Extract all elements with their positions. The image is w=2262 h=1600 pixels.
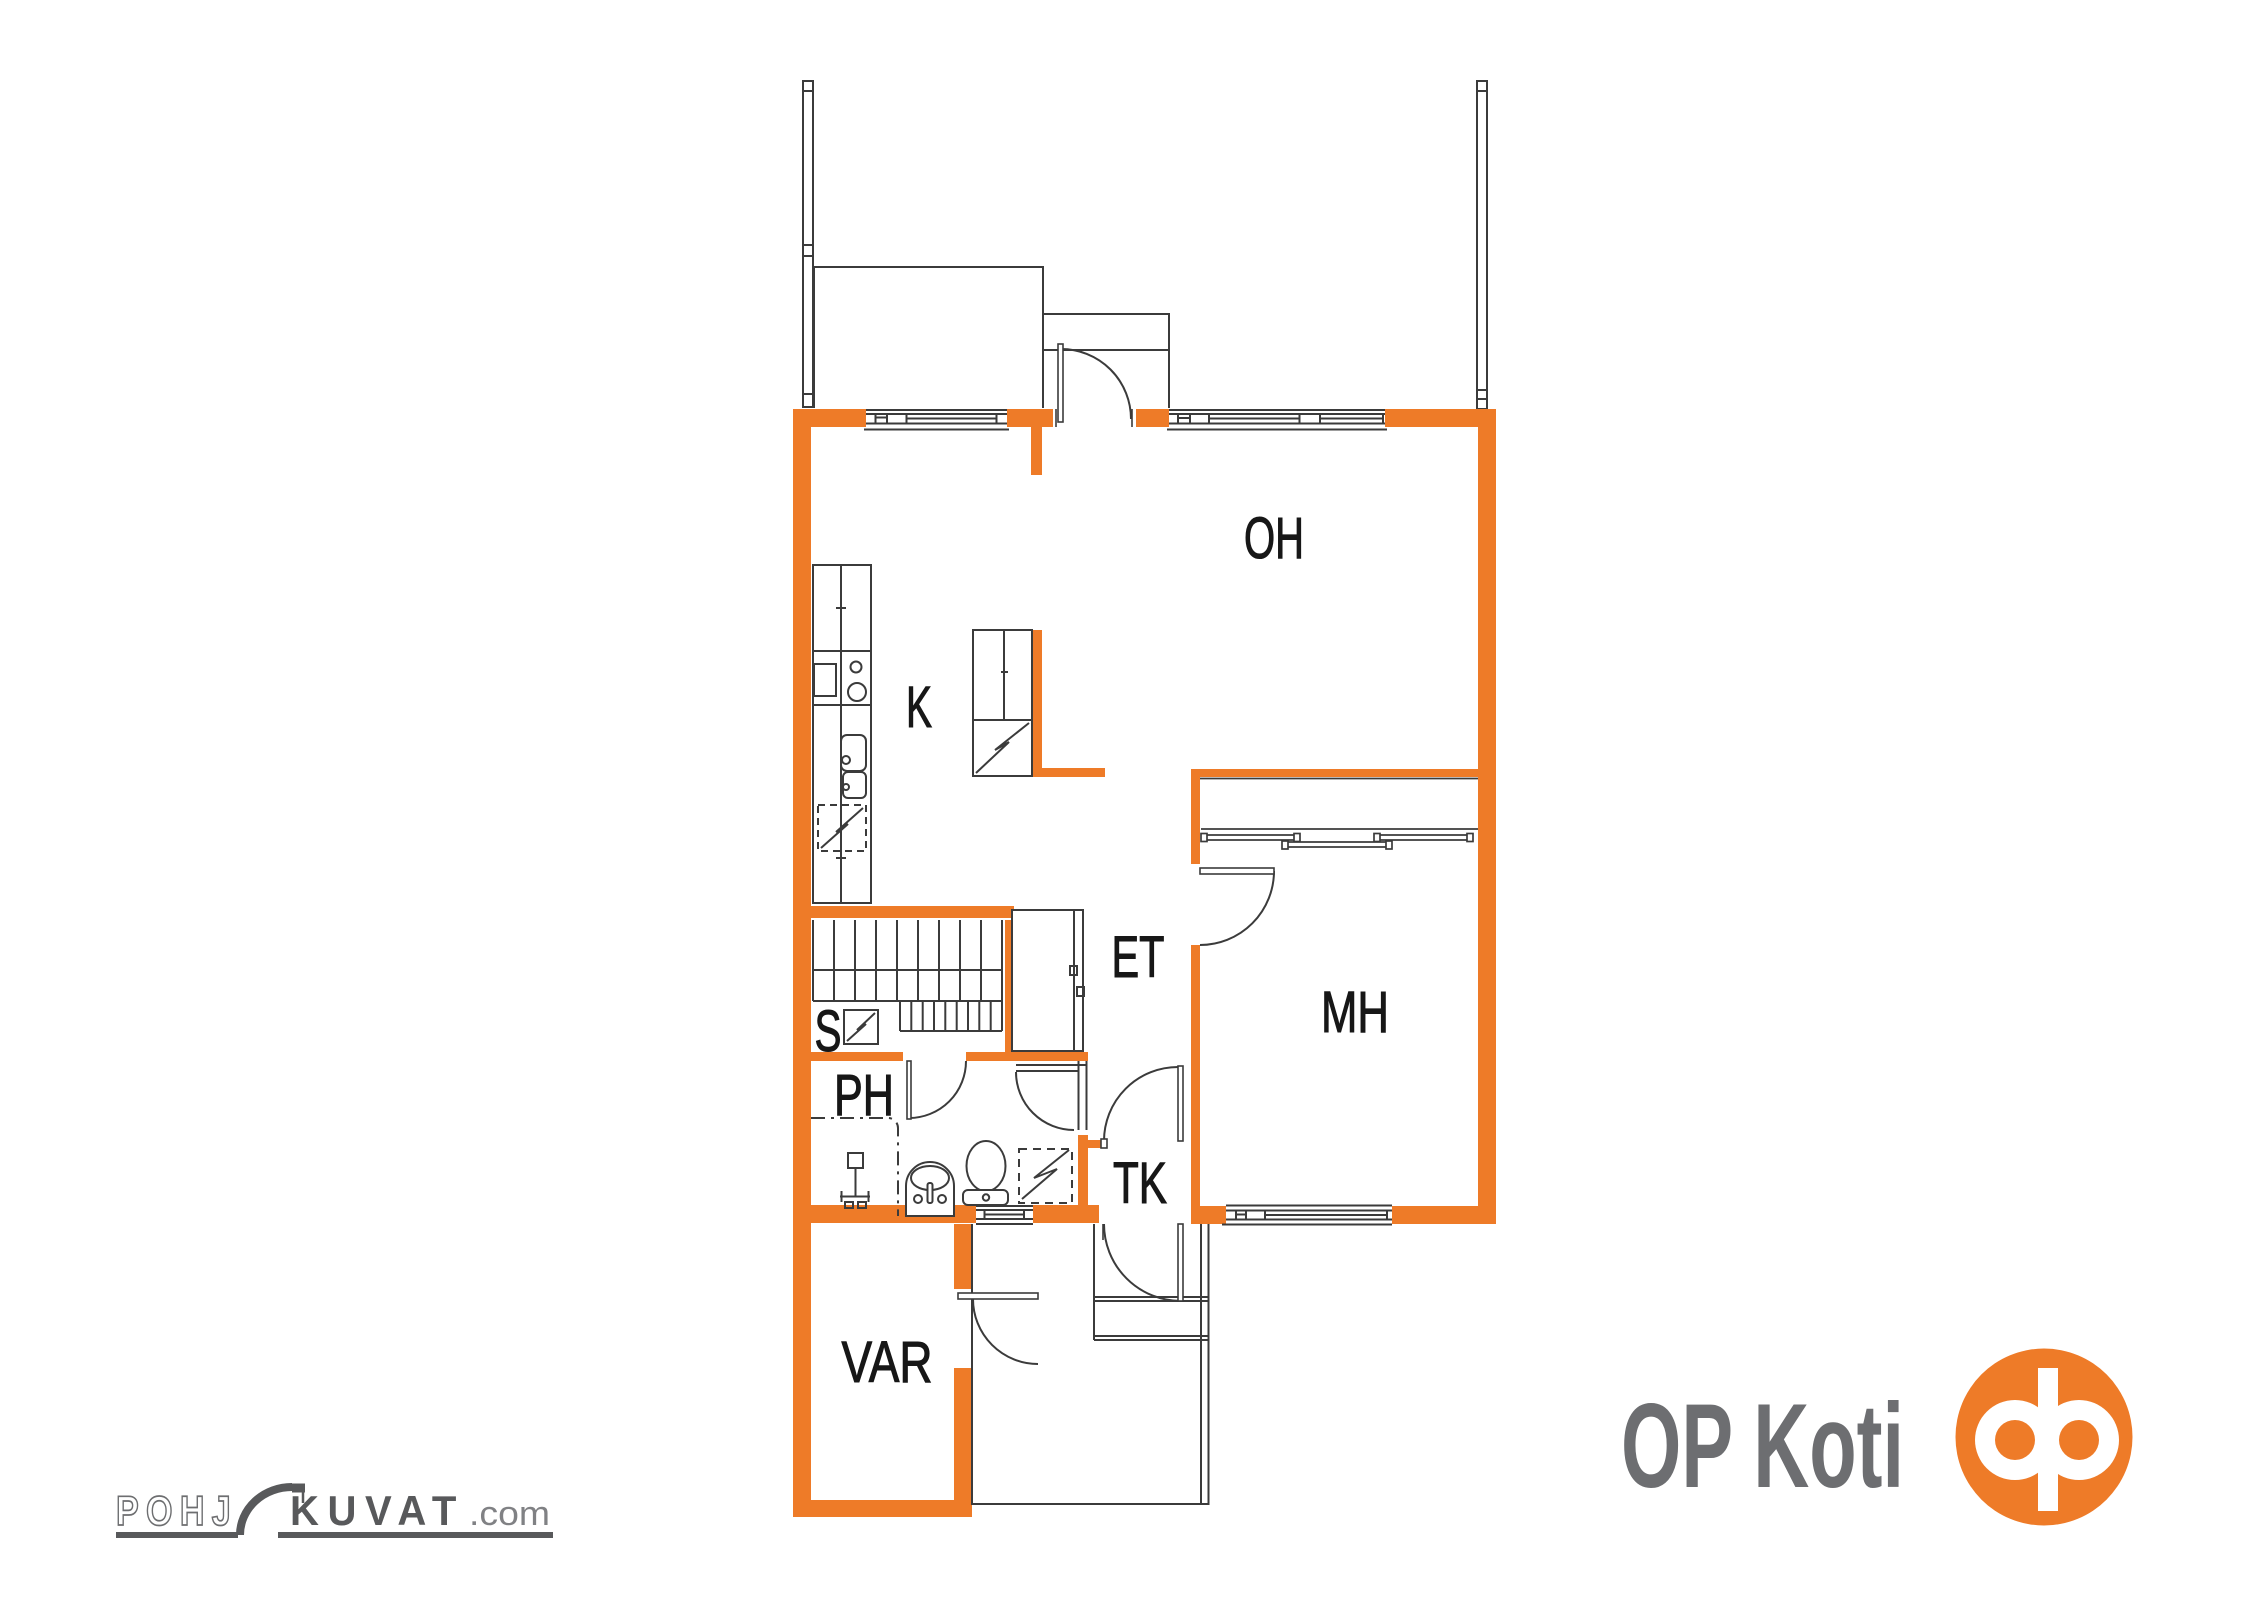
svg-text:OH: OH: [1244, 506, 1304, 571]
svg-text:TK: TK: [1113, 1151, 1167, 1216]
svg-text:.com: .com: [469, 1495, 550, 1533]
svg-text:POHJ: POHJ: [116, 1487, 238, 1534]
svg-text:OP Koti: OP Koti: [1621, 1379, 1904, 1513]
svg-text:S: S: [815, 999, 842, 1064]
svg-text:MH: MH: [1321, 980, 1389, 1045]
svg-text:KUVAT: KUVAT: [290, 1487, 465, 1534]
svg-text:ET: ET: [1112, 925, 1165, 990]
svg-text:VAR: VAR: [842, 1330, 933, 1395]
svg-text:K: K: [906, 675, 932, 740]
